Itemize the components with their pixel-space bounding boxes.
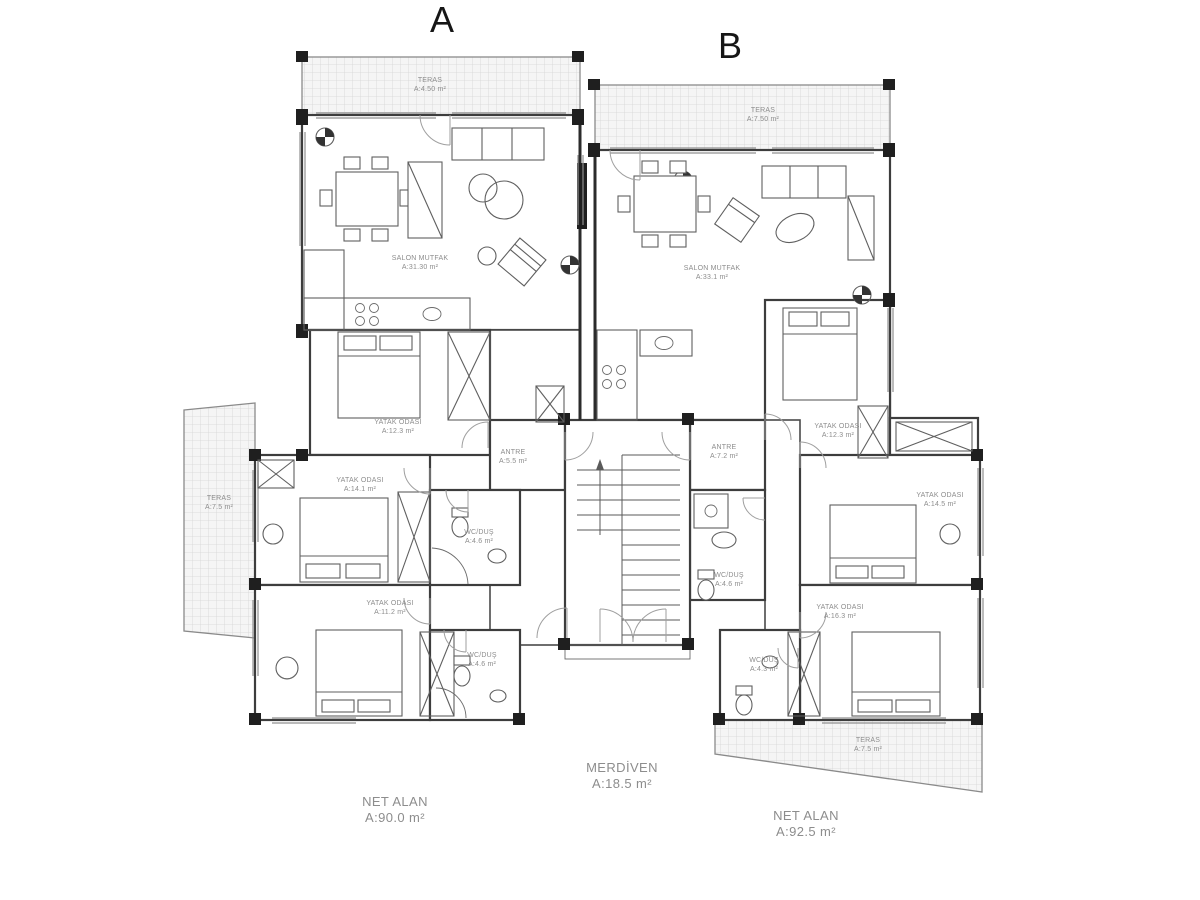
salon-a-area: A:31.30 m² <box>402 264 439 271</box>
teras-b-bottom-name: TERAS <box>856 737 880 744</box>
antre-b-name: ANTRE <box>712 444 737 451</box>
bed-b1 <box>783 308 857 400</box>
corridor-b <box>765 420 800 645</box>
yatak-b3-area: A:16.3 m² <box>824 613 857 620</box>
salon-b-area: A:33.1 m² <box>696 274 729 281</box>
tv-unit-a <box>408 162 442 238</box>
terrace-b-top <box>595 85 890 150</box>
teras-a-top-area: A:4.50 m² <box>414 86 447 93</box>
wc-a1-name: WC/DUŞ <box>464 529 494 536</box>
antre-a-area: A:5.5 m² <box>499 458 528 465</box>
bed-a3 <box>316 630 402 716</box>
terrace-b-bottom <box>715 720 982 792</box>
yatak-a2-area: A:14.1 m² <box>344 486 377 493</box>
salon-a-name: SALON MUTFAK <box>392 255 449 262</box>
hall-a-upper <box>490 330 580 420</box>
entry-landing <box>565 645 690 659</box>
yatak-a1-area: A:12.3 m² <box>382 428 415 435</box>
yatak-b1-area: A:12.3 m² <box>822 432 855 439</box>
wc-b1-area: A:4.6 m² <box>715 581 744 588</box>
yatak-a3-name: YATAK ODASI <box>366 600 413 607</box>
terrace-a-left <box>184 403 255 638</box>
yatak-b3-name: YATAK ODASI <box>816 604 863 611</box>
axis-marker-icon <box>561 256 579 274</box>
teras-a-top-name: TERAS <box>418 77 442 84</box>
bed-b2 <box>830 505 916 583</box>
room-merdiven <box>565 420 690 645</box>
tv-unit-b <box>848 196 874 260</box>
room-wc-a2 <box>430 630 520 720</box>
teras-a-left-area: A:7.5 m² <box>205 504 234 511</box>
bed-b3 <box>852 632 940 716</box>
unit-a-label: A <box>430 0 454 40</box>
net-alan-b-name: NET ALAN <box>773 808 839 823</box>
net-alan-b-area: A:92.5 m² <box>776 824 836 839</box>
net-alan-a-name: NET ALAN <box>362 794 428 809</box>
net-alan-a-area: A:90.0 m² <box>365 810 425 825</box>
wc-b1-name: WC/DUŞ <box>714 572 744 579</box>
bed-a2 <box>300 498 388 582</box>
floor-plan-drawing: A B TERAS A:4.50 m² TERAS A:7.50 m² SALO… <box>0 0 1200 900</box>
yatak-b2-name: YATAK ODASI <box>916 492 963 499</box>
teras-b-top-name: TERAS <box>751 107 775 114</box>
antre-b-area: A:7.2 m² <box>710 453 739 460</box>
merdiven-name: MERDİVEN <box>586 760 658 775</box>
wc-a1-area: A:4.6 m² <box>465 538 494 545</box>
bed-a1 <box>338 332 420 418</box>
yatak-b2-area: A:14.5 m² <box>924 501 957 508</box>
teras-b-top-area: A:7.50 m² <box>747 116 780 123</box>
axis-marker-icon <box>316 128 334 146</box>
salon-b-name: SALON MUTFAK <box>684 265 741 272</box>
wc-a2-area: A:4.6 m² <box>468 661 497 668</box>
teras-a-left-name: TERAS <box>207 495 231 502</box>
merdiven-area: A:18.5 m² <box>592 776 652 791</box>
summary-labels: MERDİVEN A:18.5 m² NET ALAN A:90.0 m² NE… <box>362 760 839 839</box>
wc-b2-name: WC/DUŞ <box>749 657 779 664</box>
unit-b-label: B <box>718 25 742 66</box>
yatak-a2-name: YATAK ODASI <box>336 477 383 484</box>
antre-a-name: ANTRE <box>501 449 526 456</box>
wc-a2-name: WC/DUŞ <box>467 652 497 659</box>
axis-marker-icon <box>853 286 871 304</box>
sofa-b <box>762 166 846 198</box>
floor-plan-page: A B TERAS A:4.50 m² TERAS A:7.50 m² SALO… <box>0 0 1200 900</box>
yatak-a3-area: A:11.2 m² <box>374 609 406 616</box>
teras-b-bottom-area: A:7.5 m² <box>854 746 883 753</box>
sofa-a <box>452 128 544 160</box>
wc-b2-area: A:4.3 m² <box>750 666 779 673</box>
yatak-a1-name: YATAK ODASI <box>374 419 421 426</box>
yatak-b1-name: YATAK ODASI <box>814 423 861 430</box>
